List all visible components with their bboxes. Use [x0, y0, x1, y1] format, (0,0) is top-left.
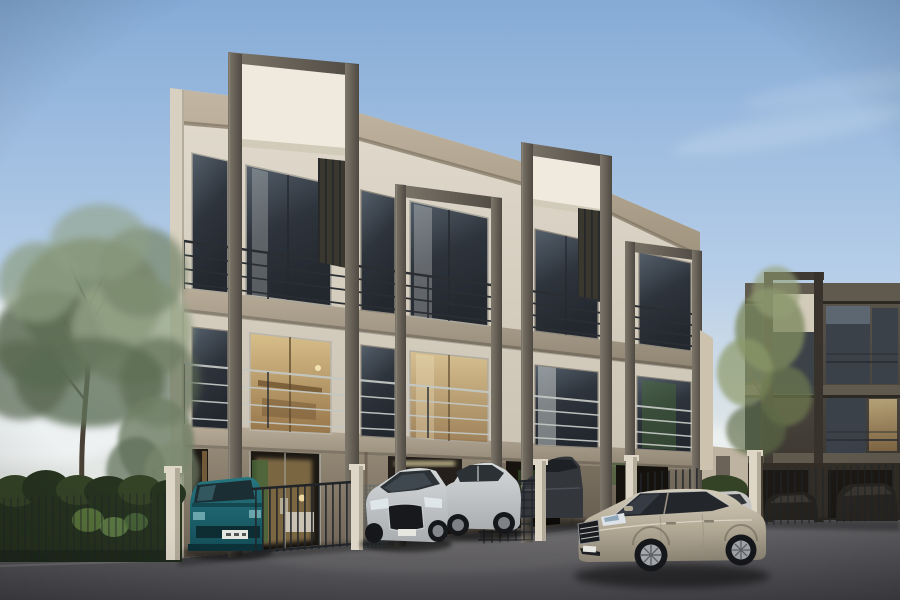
vignette: [0, 0, 900, 600]
architectural-render: [0, 0, 900, 600]
render-canvas: [0, 0, 900, 600]
